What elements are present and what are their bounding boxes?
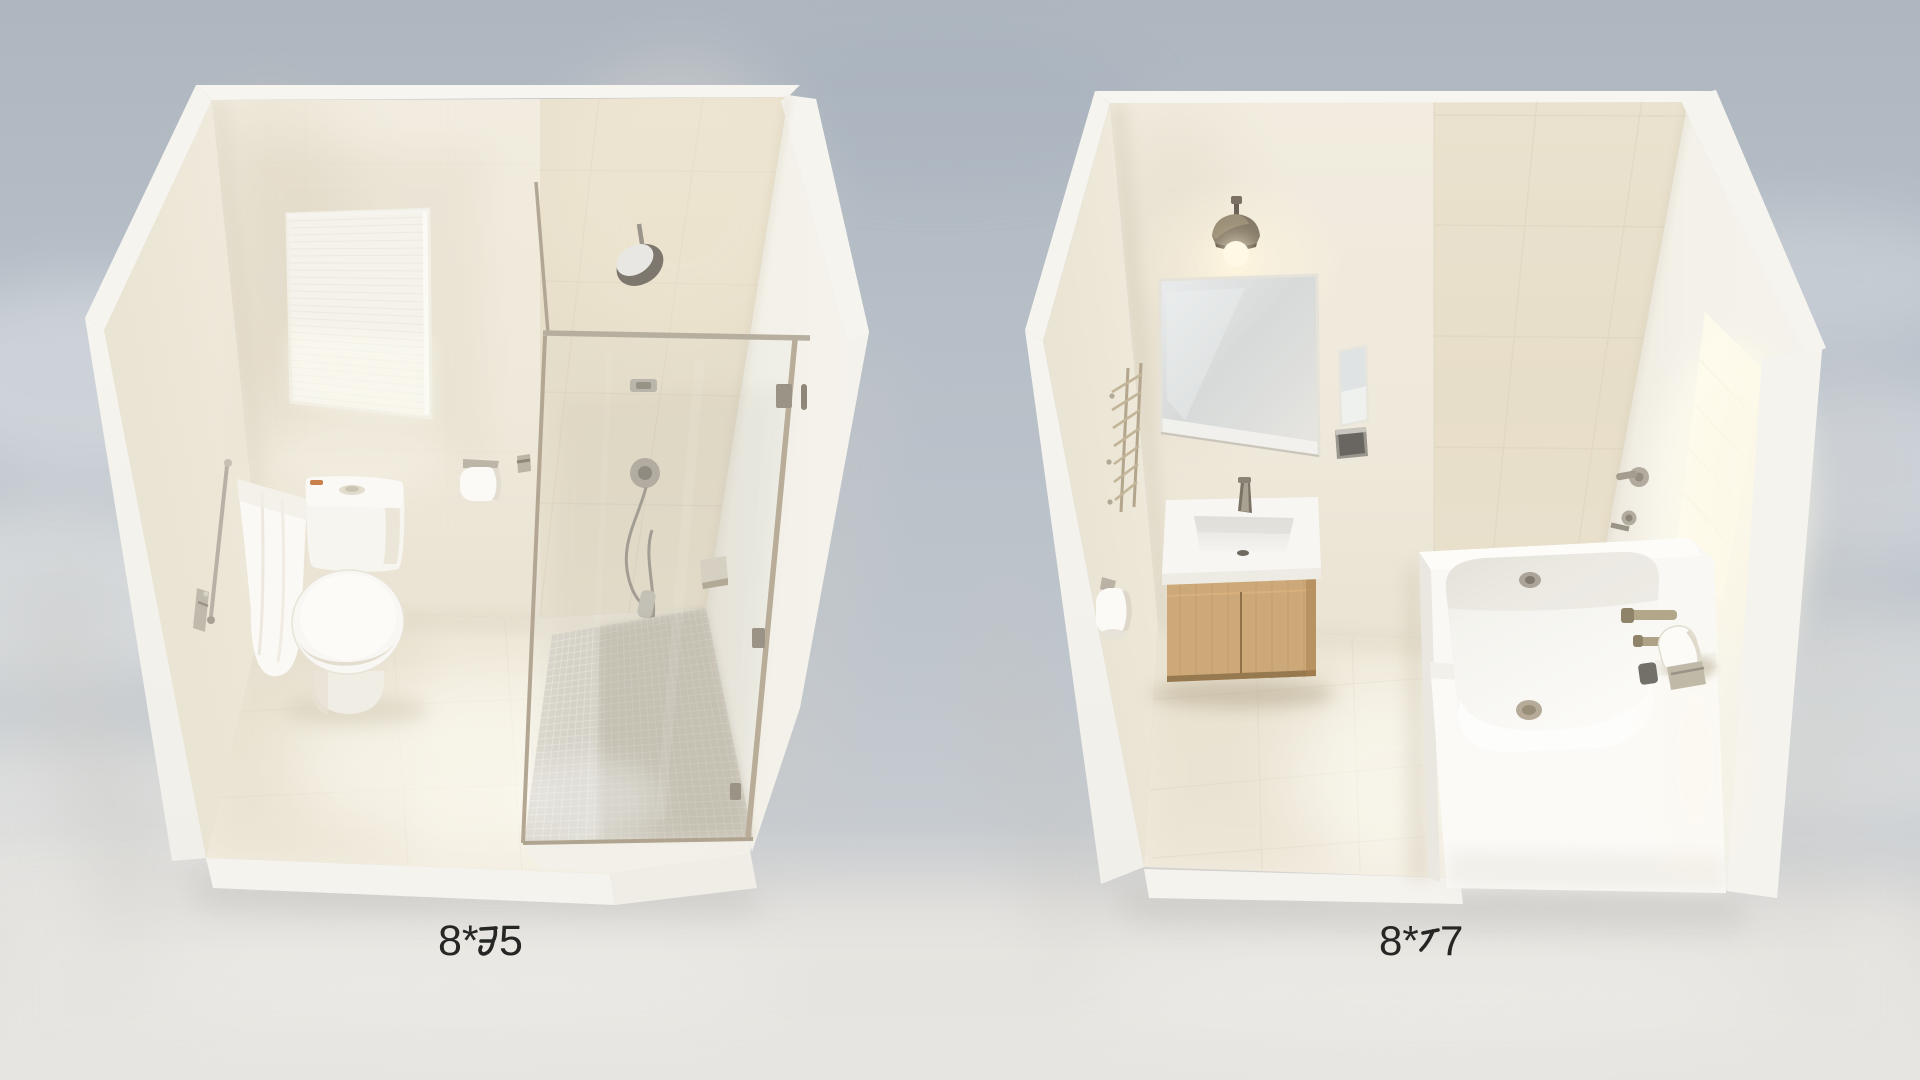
svg-text:7: 7 (1440, 917, 1463, 964)
svg-text:8*: 8* (1379, 917, 1419, 964)
svg-text:8*: 8* (438, 917, 479, 965)
svg-text:5: 5 (499, 917, 523, 965)
